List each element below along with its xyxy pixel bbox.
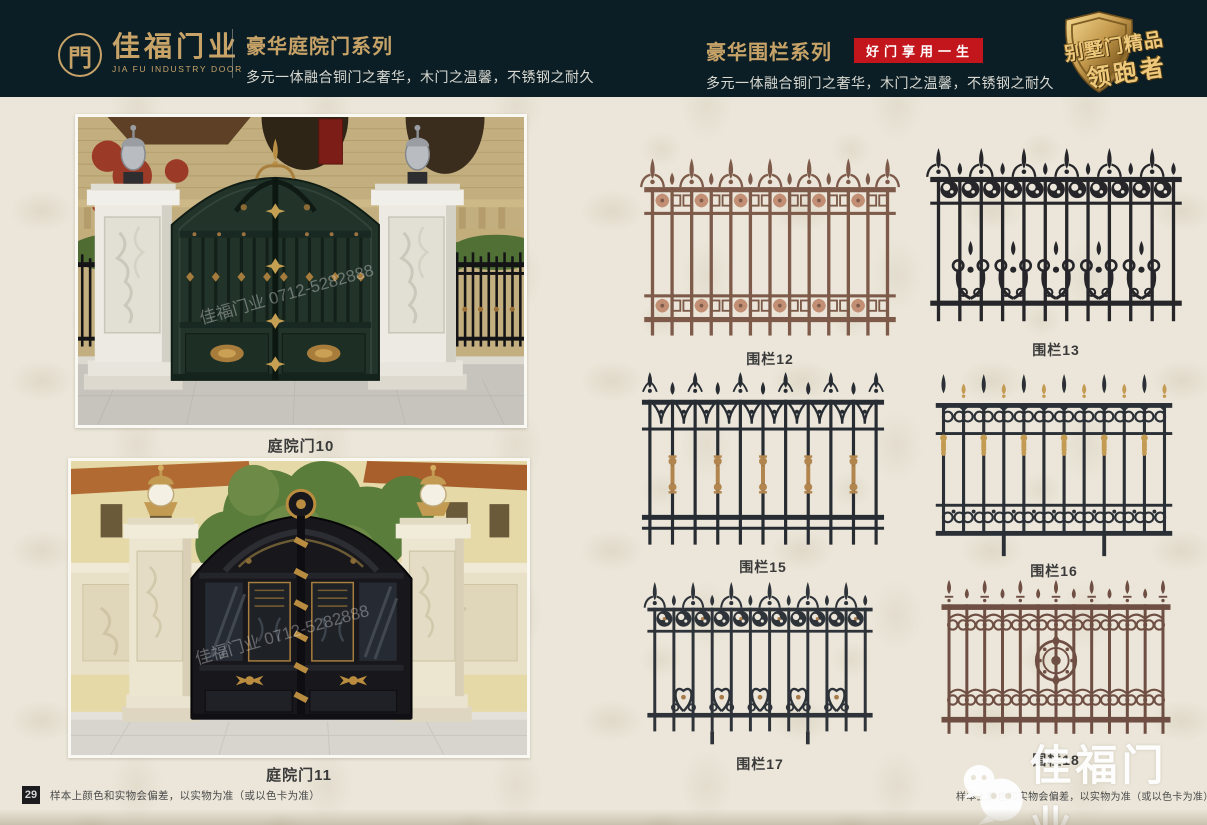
- page-number-left: 29: [22, 786, 40, 804]
- gate-10-scene: 佳福门业 0712-5282888: [78, 117, 524, 425]
- series-right-subtitle: 多元一体融合铜门之奢华，木门之温馨，不锈钢之耐久: [706, 73, 1054, 93]
- header-divider: [232, 29, 233, 78]
- fence-15-art: [634, 370, 892, 554]
- fence-17-label: 围栏17: [640, 754, 880, 774]
- fence-13-label: 围栏13: [922, 340, 1190, 360]
- fence-item-16: 围栏16: [928, 372, 1180, 581]
- slogan-badge: 好门享用一生: [854, 38, 983, 63]
- fence-18-art: [934, 578, 1178, 747]
- fence-item-18: 围栏18: [934, 578, 1178, 770]
- door-glyph: 門: [68, 38, 92, 73]
- footer-left: 29 样本上颜色和实物会偏差，以实物为准（或以色卡为准）: [22, 786, 320, 804]
- series-right-block: 豪华围栏系列 好门享用一生 多元一体融合铜门之奢华，木门之温馨，不锈钢之耐久: [706, 36, 1054, 93]
- brand-name-en: JIA FU INDUSTRY DOOR: [112, 64, 243, 74]
- brand-text: 佳福门业 JIA FU INDUSTRY DOOR: [112, 33, 243, 74]
- series-left-subtitle: 多元一体融合铜门之奢华，木门之温馨，不锈钢之耐久: [246, 67, 594, 87]
- gate-photo-11: 佳福门业 0712-5282888: [68, 458, 530, 758]
- premium-emblem: 别墅门精品 领跑者: [1056, 6, 1196, 96]
- fence-item-17: 围栏17: [640, 580, 880, 774]
- fence-13-art: [922, 146, 1190, 337]
- series-left-title: 豪华庭院门系列: [246, 30, 594, 59]
- series-left-block: 豪华庭院门系列 多元一体融合铜门之奢华，木门之温馨，不锈钢之耐久: [246, 30, 594, 87]
- gate-photo-10: 佳福门业 0712-5282888: [75, 114, 527, 428]
- catalog-spread: 門 佳福门业 JIA FU INDUSTRY DOOR 豪华庭院门系列 多元一体…: [0, 0, 1207, 825]
- fence-18-label: 围栏18: [934, 750, 1178, 770]
- fence-item-13: 围栏13: [922, 146, 1190, 360]
- disclaimer-right: 样本上颜色和实物会偏差，以实物为准（或以色卡为准）: [956, 788, 1207, 803]
- fence-15-label: 围栏15: [634, 557, 892, 577]
- footer-right: 样本上颜色和实物会偏差，以实物为准（或以色卡为准） 30: [956, 786, 1207, 804]
- series-right-title: 豪华围栏系列: [706, 36, 832, 65]
- fence-12-label: 围栏12: [636, 349, 904, 369]
- fence-17-art: [640, 580, 880, 751]
- gate-11-label: 庭院门11: [68, 764, 530, 785]
- gate-10-label: 庭院门10: [75, 435, 527, 456]
- gate-11-scene: 佳福门业 0712-5282888: [71, 461, 527, 755]
- fence-16-art: [928, 372, 1180, 558]
- fence-item-12: 围栏12: [636, 150, 904, 369]
- fence-item-15: 围栏15: [634, 370, 892, 577]
- disclaimer-left: 样本上颜色和实物会偏差，以实物为准（或以色卡为准）: [50, 788, 320, 803]
- fence-12-art: [636, 150, 904, 346]
- header-bar: 門 佳福门业 JIA FU INDUSTRY DOOR 豪华庭院门系列 多元一体…: [0, 0, 1207, 97]
- door-glyph-icon: 門: [58, 33, 102, 77]
- brand-name: 佳福门业: [112, 33, 243, 61]
- brand-logo: 門 佳福门业 JIA FU INDUSTRY DOOR: [58, 33, 243, 77]
